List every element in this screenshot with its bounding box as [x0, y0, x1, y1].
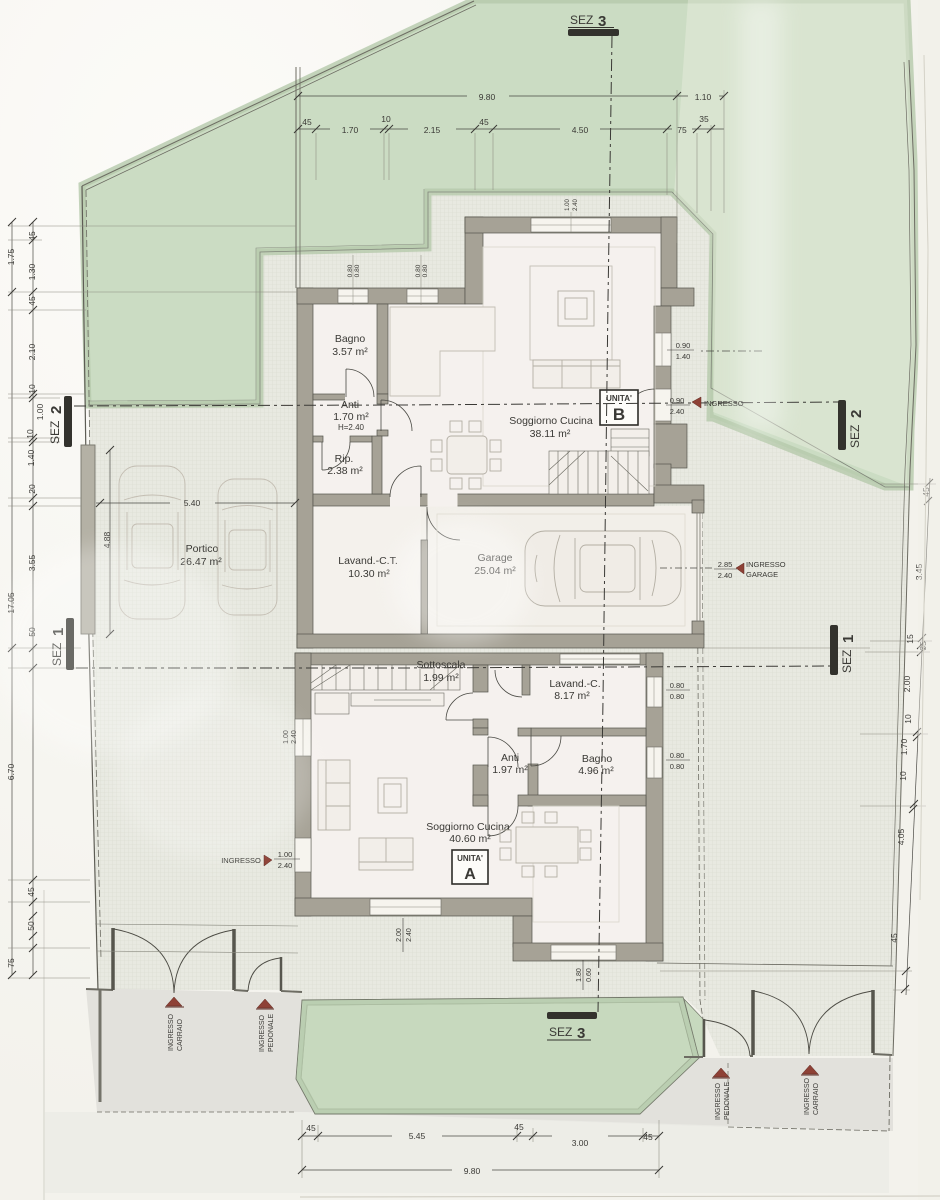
svg-text:Bagno: Bagno	[335, 333, 366, 345]
svg-text:2.38 m²: 2.38 m²	[327, 465, 363, 477]
svg-text:Rip.: Rip.	[335, 453, 354, 465]
svg-text:1.30: 1.30	[27, 263, 37, 280]
svg-text:B: B	[613, 405, 625, 424]
svg-text:45: 45	[643, 1132, 653, 1142]
svg-text:1.00: 1.00	[278, 850, 293, 859]
svg-text:5.45: 5.45	[409, 1131, 426, 1141]
svg-text:SEZ: SEZ	[570, 13, 593, 27]
svg-text:Portico: Portico	[186, 543, 219, 555]
svg-text:PEDONALE: PEDONALE	[268, 1014, 275, 1052]
svg-text:15: 15	[905, 634, 915, 644]
svg-text:1.70: 1.70	[342, 125, 359, 135]
svg-text:38.11 m²: 38.11 m²	[530, 428, 571, 440]
svg-text:3: 3	[577, 1025, 585, 1042]
svg-text:8.17 m²: 8.17 m²	[554, 690, 590, 702]
svg-text:SEZ: SEZ	[840, 650, 854, 673]
svg-text:10: 10	[381, 114, 391, 124]
svg-text:3.55: 3.55	[27, 554, 37, 571]
svg-text:0.80: 0.80	[670, 762, 685, 771]
svg-text:0.80: 0.80	[354, 264, 361, 277]
svg-text:3.00: 3.00	[572, 1138, 589, 1148]
svg-text:45: 45	[479, 117, 489, 127]
svg-text:1.75: 1.75	[6, 248, 16, 265]
svg-text:6.70: 6.70	[6, 763, 16, 780]
svg-text:40.60 m²: 40.60 m²	[449, 833, 491, 845]
svg-text:2.40: 2.40	[406, 928, 413, 942]
svg-text:INGRESSO: INGRESSO	[168, 1013, 175, 1051]
svg-text:UNITA': UNITA'	[457, 854, 483, 863]
svg-text:2: 2	[848, 410, 865, 418]
svg-text:50: 50	[26, 921, 36, 931]
svg-text:Bagno: Bagno	[582, 753, 613, 765]
svg-text:45: 45	[306, 1123, 316, 1133]
svg-text:2.40: 2.40	[278, 861, 293, 870]
svg-text:0.60: 0.60	[586, 968, 593, 982]
svg-text:CARRAIO: CARRAIO	[177, 1019, 184, 1051]
svg-text:Soggiorno Cucina: Soggiorno Cucina	[509, 415, 593, 427]
svg-text:INGRESSO: INGRESSO	[704, 399, 744, 408]
svg-text:1.40: 1.40	[26, 449, 36, 466]
svg-text:45: 45	[27, 296, 37, 306]
svg-text:2.10: 2.10	[27, 343, 37, 360]
svg-text:INGRESSO: INGRESSO	[715, 1082, 722, 1120]
svg-text:4.50: 4.50	[572, 125, 589, 135]
svg-text:45: 45	[302, 117, 312, 127]
svg-text:Lavand.-C.: Lavand.-C.	[549, 678, 600, 690]
svg-text:Lavand.-C.T.: Lavand.-C.T.	[338, 555, 398, 567]
svg-text:SEZ: SEZ	[549, 1025, 572, 1039]
svg-text:Sottoscala: Sottoscala	[416, 659, 465, 671]
svg-text:2.40: 2.40	[573, 199, 579, 211]
svg-text:75: 75	[6, 958, 16, 968]
svg-text:5.40: 5.40	[184, 498, 201, 508]
svg-text:2.40: 2.40	[718, 571, 733, 580]
svg-text:2: 2	[48, 406, 65, 414]
svg-text:INGRESSO: INGRESSO	[259, 1014, 266, 1052]
svg-text:45: 45	[26, 887, 36, 897]
svg-text:INGRESSO: INGRESSO	[804, 1077, 811, 1115]
svg-text:45: 45	[27, 231, 37, 241]
svg-text:0.80: 0.80	[422, 264, 429, 277]
svg-text:1.70 m²: 1.70 m²	[333, 411, 369, 423]
svg-text:10.30 m²: 10.30 m²	[348, 568, 390, 580]
svg-text:1.80: 1.80	[576, 968, 583, 982]
svg-text:2.00: 2.00	[902, 675, 912, 692]
svg-text:9.80: 9.80	[479, 92, 496, 102]
svg-text:20: 20	[27, 484, 37, 494]
svg-text:1.70: 1.70	[899, 738, 909, 755]
svg-text:0.90: 0.90	[670, 396, 685, 405]
svg-text:10: 10	[903, 714, 913, 724]
svg-text:Anti: Anti	[501, 752, 519, 764]
svg-text:3.57 m²: 3.57 m²	[332, 346, 368, 358]
svg-text:1.00: 1.00	[565, 199, 571, 211]
svg-text:0.80: 0.80	[670, 692, 685, 701]
svg-text:0.80: 0.80	[347, 264, 354, 277]
svg-text:GARAGE: GARAGE	[746, 570, 778, 579]
svg-text:9.80: 9.80	[464, 1166, 481, 1176]
svg-text:0.80: 0.80	[670, 681, 685, 690]
svg-text:2.40: 2.40	[670, 407, 685, 416]
svg-text:75: 75	[677, 125, 687, 135]
svg-text:45: 45	[889, 933, 899, 943]
svg-text:45: 45	[514, 1122, 524, 1132]
svg-text:INGRESSO: INGRESSO	[746, 560, 786, 569]
svg-text:0.90: 0.90	[676, 341, 691, 350]
svg-text:0.80: 0.80	[415, 264, 422, 277]
svg-text:SEZ: SEZ	[848, 425, 862, 448]
svg-text:PEDONALE: PEDONALE	[724, 1082, 731, 1120]
svg-text:SEZ: SEZ	[48, 421, 62, 444]
svg-text:2.15: 2.15	[424, 125, 441, 135]
svg-text:UNITA': UNITA'	[606, 394, 632, 403]
svg-text:2.00: 2.00	[396, 928, 403, 942]
svg-text:10: 10	[898, 771, 908, 781]
svg-text:2.85: 2.85	[718, 560, 733, 569]
svg-text:4.96 m²: 4.96 m²	[578, 765, 614, 777]
svg-text:10: 10	[25, 429, 35, 439]
svg-text:4.05: 4.05	[896, 828, 906, 845]
svg-text:1: 1	[840, 635, 857, 643]
svg-text:1.99 m²: 1.99 m²	[423, 672, 459, 684]
svg-text:1.40: 1.40	[676, 352, 691, 361]
svg-text:Soggiorno Cucina: Soggiorno Cucina	[426, 821, 510, 833]
svg-text:1.00: 1.00	[35, 403, 45, 420]
svg-text:1.10: 1.10	[695, 92, 712, 102]
svg-text:35: 35	[699, 114, 709, 124]
svg-text:H=2.40: H=2.40	[338, 423, 365, 432]
svg-text:CARRAIO: CARRAIO	[813, 1083, 820, 1115]
svg-text:10: 10	[27, 384, 37, 394]
svg-text:1.97 m²: 1.97 m²	[492, 764, 528, 776]
svg-text:A: A	[464, 866, 476, 883]
svg-text:0.80: 0.80	[670, 751, 685, 760]
